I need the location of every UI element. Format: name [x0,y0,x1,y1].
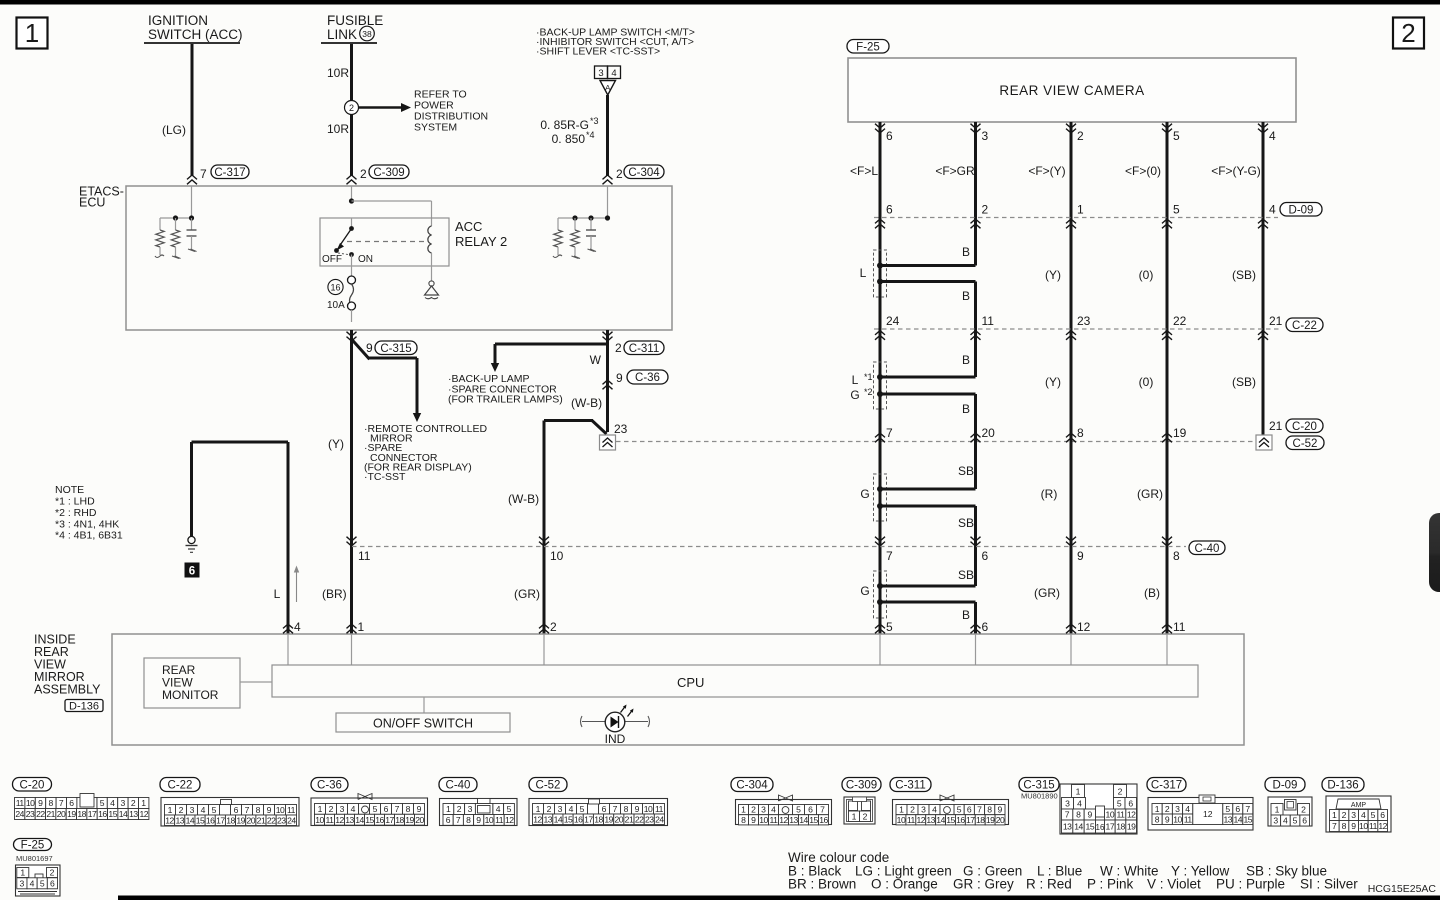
svg-text:(GR): (GR) [1034,586,1060,600]
svg-text:5: 5 [1117,798,1122,808]
svg-text:19: 19 [1127,822,1136,832]
svg-text:13: 13 [789,815,798,825]
svg-text:(R): (R) [1041,487,1058,501]
svg-text:2: 2 [179,805,184,815]
svg-text:6: 6 [602,804,607,814]
svg-text:16: 16 [819,815,828,825]
svg-text:3: 3 [761,805,766,815]
svg-text:6: 6 [967,805,972,815]
svg-text:4: 4 [201,805,206,815]
svg-text:D-09: D-09 [1289,204,1314,216]
svg-text:4: 4 [351,804,356,814]
svg-text:1: 1 [899,805,904,815]
svg-text:11: 11 [907,815,916,825]
svg-text:(0): (0) [1139,268,1154,282]
svg-text:9: 9 [267,805,272,815]
svg-text:<F>(0): <F>(0) [1125,164,1161,178]
svg-text:L: L [852,373,859,387]
svg-text:12: 12 [139,809,148,819]
svg-text:FUSIBLE: FUSIBLE [327,13,383,28]
svg-text:2: 2 [329,804,334,814]
svg-text:15: 15 [365,815,374,825]
svg-text:2: 2 [1165,804,1170,814]
svg-text:10: 10 [485,815,494,825]
svg-text:C-311: C-311 [629,343,659,355]
svg-text:15: 15 [1244,814,1253,824]
svg-text:<F>L: <F>L [850,164,878,178]
svg-text:8: 8 [1342,821,1347,831]
svg-text:3: 3 [558,804,563,814]
svg-text:15: 15 [196,815,205,825]
svg-text:LINK: LINK [327,27,357,42]
svg-text:14: 14 [186,815,195,825]
svg-text:24: 24 [655,814,664,824]
svg-text:21: 21 [1269,314,1283,328]
svg-text:7: 7 [59,798,64,808]
svg-text:C-315: C-315 [380,343,411,355]
svg-text:23: 23 [1077,314,1091,328]
svg-text:20: 20 [996,815,1005,825]
svg-text:V : Violet: V : Violet [1147,877,1201,892]
svg-text:SYSTEM: SYSTEM [414,122,457,134]
svg-text:7: 7 [1332,821,1337,831]
svg-text:2: 2 [982,203,989,217]
svg-text:19: 19 [986,815,995,825]
svg-text:10: 10 [276,805,285,815]
svg-text:·SHIFT LEVER <TC-SST>: ·SHIFT LEVER <TC-SST> [536,45,660,57]
svg-text:10: 10 [759,815,768,825]
svg-text:ON/OFF SWITCH: ON/OFF SWITCH [373,717,473,731]
svg-text:12: 12 [779,815,788,825]
svg-text:B: B [962,353,970,367]
svg-text:5: 5 [100,798,105,808]
svg-text:7: 7 [200,167,207,181]
svg-text:G: G [860,584,869,598]
svg-text:B: B [962,608,970,622]
svg-text:5: 5 [507,804,512,814]
svg-text:<F>(Y): <F>(Y) [1028,164,1065,178]
svg-text:C-40: C-40 [1195,543,1220,555]
svg-text:21: 21 [1269,419,1283,433]
svg-text:C-311: C-311 [895,780,925,792]
svg-text:14: 14 [119,809,128,819]
svg-text:IGNITION: IGNITION [148,13,208,28]
svg-text:13: 13 [1224,814,1233,824]
svg-text:SB: SB [958,464,974,478]
svg-text:2: 2 [863,811,868,821]
svg-text:5: 5 [212,805,217,815]
svg-text:*1: *1 [864,372,873,382]
svg-text:19: 19 [1173,426,1187,440]
svg-text:MU801697: MU801697 [16,854,53,863]
svg-text:C-36: C-36 [635,372,660,384]
svg-text:22: 22 [1173,314,1187,328]
svg-text:P : Pink: P : Pink [1087,877,1134,892]
svg-text:3: 3 [1273,816,1278,826]
svg-text:6: 6 [1235,804,1240,814]
svg-text:5: 5 [1225,804,1230,814]
svg-text:REAR VIEW CAMERA: REAR VIEW CAMERA [999,83,1144,98]
svg-text:(W-B): (W-B) [571,396,602,410]
svg-text:(LG): (LG) [162,123,186,137]
svg-text:2: 2 [349,103,354,113]
svg-text:15: 15 [564,814,573,824]
svg-text:19: 19 [405,815,414,825]
svg-text:(BR): (BR) [322,587,347,601]
svg-text:C-317: C-317 [214,167,245,179]
svg-text:3: 3 [921,805,926,815]
svg-text:1: 1 [141,798,146,808]
svg-text:C-304: C-304 [628,167,660,179]
svg-text:(Y): (Y) [1045,375,1061,389]
svg-text:6: 6 [446,815,451,825]
svg-text:13: 13 [543,814,552,824]
svg-text:14: 14 [1234,814,1243,824]
svg-text:17: 17 [216,815,225,825]
svg-text:2: 2 [457,804,462,814]
svg-text:2: 2 [751,805,756,815]
svg-text:13: 13 [1063,822,1072,832]
svg-text:3: 3 [468,804,473,814]
svg-text:5: 5 [1173,203,1180,217]
svg-text:6: 6 [384,804,389,814]
svg-text:11: 11 [1184,814,1193,824]
svg-text:4: 4 [932,805,937,815]
svg-text:11: 11 [1173,620,1186,634]
svg-text:NOTE: NOTE [55,484,84,496]
svg-text:6: 6 [982,620,989,634]
svg-text:ECU: ECU [79,196,105,210]
svg-text:12: 12 [165,815,174,825]
svg-text:4: 4 [611,68,616,79]
svg-text:22: 22 [267,815,276,825]
svg-text:F-25: F-25 [856,41,880,53]
svg-text:18: 18 [226,815,235,825]
svg-text:C-317: C-317 [1151,780,1182,792]
svg-text:2: 2 [360,167,367,181]
svg-text:15: 15 [1086,822,1095,832]
svg-text:16: 16 [956,815,965,825]
svg-text:2: 2 [1342,810,1347,820]
svg-text:5: 5 [1293,816,1298,826]
svg-text:20: 20 [982,426,996,440]
svg-text:11: 11 [982,314,995,328]
svg-text:2: 2 [550,620,557,634]
svg-text:14: 14 [936,815,945,825]
svg-text:R : Red: R : Red [1026,877,1072,892]
svg-text:1: 1 [25,18,39,48]
svg-text:10: 10 [644,804,653,814]
svg-text:8: 8 [1076,810,1081,820]
svg-text:1: 1 [1155,804,1160,814]
svg-text:11: 11 [1117,810,1126,820]
svg-text:7: 7 [395,804,400,814]
svg-text:*4: *4 [586,130,595,140]
svg-text:17: 17 [88,809,97,819]
svg-text:10: 10 [315,815,324,825]
svg-text:12: 12 [1127,810,1136,820]
svg-text:7: 7 [1245,804,1250,814]
svg-text:11: 11 [495,815,504,825]
svg-text:1: 1 [741,805,746,815]
svg-text:(SB): (SB) [1232,375,1256,389]
svg-text:C-315: C-315 [1023,780,1054,792]
svg-text:4: 4 [569,804,574,814]
svg-text:10: 10 [550,549,564,563]
svg-text:1: 1 [1275,805,1280,815]
svg-text:3: 3 [598,68,603,79]
svg-text:C-22: C-22 [1292,320,1317,332]
svg-text:C-22: C-22 [168,780,193,792]
svg-text:24: 24 [287,815,296,825]
svg-text:C-309: C-309 [373,167,404,179]
svg-text:*2 : RHD: *2 : RHD [55,507,97,519]
svg-text:13: 13 [345,815,354,825]
svg-text:CPU: CPU [677,675,704,690]
svg-text:7: 7 [245,805,250,815]
svg-text:7: 7 [977,805,982,815]
svg-text:18: 18 [976,815,985,825]
svg-text:14: 14 [799,815,808,825]
svg-text:1: 1 [446,804,451,814]
svg-text:4: 4 [771,805,776,815]
svg-text:10: 10 [1106,810,1115,820]
svg-text:1: 1 [1076,787,1081,797]
svg-text:6: 6 [1380,810,1385,820]
svg-text:7: 7 [886,426,893,440]
svg-text:W: W [590,353,602,367]
svg-text:17: 17 [1106,822,1115,832]
svg-text:3: 3 [19,878,24,888]
svg-text:6: 6 [189,566,195,578]
svg-text:8: 8 [987,805,992,815]
svg-text:HCG15E25AC: HCG15E25AC [1368,883,1437,895]
svg-text:15: 15 [108,809,117,819]
svg-text:23: 23 [277,815,286,825]
svg-text:RELAY 2: RELAY 2 [455,234,507,249]
svg-text:20: 20 [247,815,256,825]
svg-text:GR : Grey: GR : Grey [953,877,1014,892]
svg-text:A: A [605,83,610,92]
svg-text:1: 1 [20,868,25,878]
svg-text:23: 23 [614,422,628,436]
svg-text:6: 6 [69,798,74,808]
svg-text:3: 3 [190,805,195,815]
svg-text:MU801890: MU801890 [1021,792,1058,801]
svg-text:12: 12 [916,815,925,825]
svg-text:8: 8 [406,804,411,814]
svg-text:2: 2 [1301,805,1306,815]
svg-text:4: 4 [1077,798,1082,808]
svg-text:12: 12 [1077,620,1091,634]
svg-text:15: 15 [809,815,818,825]
svg-text:6: 6 [982,549,989,563]
svg-text:10: 10 [1173,814,1182,824]
svg-text:20: 20 [415,815,424,825]
svg-text:16: 16 [574,814,583,824]
svg-text:3: 3 [340,804,345,814]
svg-text:3: 3 [1065,798,1070,808]
svg-text:D-136: D-136 [69,700,99,712]
svg-text:1: 1 [168,805,173,815]
svg-text:SWITCH (ACC): SWITCH (ACC) [148,27,243,42]
svg-text:13: 13 [175,815,184,825]
svg-text:F-25: F-25 [21,840,45,852]
svg-text:6: 6 [886,129,893,143]
svg-text:2: 2 [1401,18,1415,48]
svg-text:17: 17 [584,814,593,824]
svg-text:4: 4 [110,798,115,808]
svg-text:4: 4 [1361,810,1366,820]
svg-text:7: 7 [820,805,825,815]
svg-text:7: 7 [456,815,461,825]
svg-text:3: 3 [982,129,989,143]
svg-text:13: 13 [129,809,138,819]
svg-text:L: L [860,266,867,280]
svg-text:9: 9 [366,341,373,355]
svg-text:11: 11 [358,549,371,563]
svg-text:18: 18 [594,814,603,824]
svg-text:(Y): (Y) [328,437,344,451]
svg-text:5: 5 [957,805,962,815]
svg-text:*1 : LHD: *1 : LHD [55,496,95,508]
svg-text:(SB): (SB) [1232,268,1256,282]
svg-text:9: 9 [1351,821,1356,831]
svg-text:16: 16 [206,815,215,825]
svg-text:7: 7 [886,549,893,563]
svg-text:8: 8 [1155,814,1160,824]
svg-text:6: 6 [886,203,893,217]
svg-text:6: 6 [1302,816,1307,826]
svg-text:4: 4 [496,804,501,814]
svg-text:C-20: C-20 [20,779,45,791]
svg-text:ACC: ACC [455,219,482,234]
svg-text:2: 2 [50,868,55,878]
svg-text:8: 8 [741,815,746,825]
svg-text:11: 11 [16,798,25,808]
svg-text:(0): (0) [1139,375,1154,389]
svg-text:5: 5 [580,804,585,814]
svg-text:9: 9 [635,804,640,814]
svg-text:14: 14 [1074,822,1083,832]
svg-text:AMP: AMP [1351,802,1367,809]
svg-text:13: 13 [926,815,935,825]
svg-text:12: 12 [505,815,514,825]
svg-text:12: 12 [335,815,344,825]
svg-text:20: 20 [615,814,624,824]
svg-text:(GR): (GR) [514,587,540,601]
svg-text:B: B [962,245,970,259]
svg-text:8: 8 [1173,549,1180,563]
svg-text:B: B [962,402,970,416]
svg-text:5: 5 [373,804,378,814]
svg-text:11: 11 [655,804,664,814]
svg-text:ON: ON [358,254,373,265]
svg-text:18: 18 [1116,822,1125,832]
svg-text:C-309: C-309 [846,780,877,792]
svg-text:9: 9 [417,804,422,814]
svg-text:11: 11 [287,805,296,815]
svg-text:C-52: C-52 [536,780,561,792]
svg-text:1: 1 [852,811,857,821]
svg-text:9: 9 [1077,549,1084,563]
svg-text:24: 24 [886,314,900,328]
svg-text:2: 2 [1118,787,1123,797]
svg-text:9: 9 [476,815,481,825]
svg-text:12: 12 [1378,821,1387,831]
svg-text:6: 6 [234,805,239,815]
svg-text:16: 16 [375,815,384,825]
svg-text:3: 3 [1175,804,1180,814]
svg-text:·TC-SST: ·TC-SST [364,471,406,483]
svg-text:8: 8 [624,804,629,814]
svg-text:11: 11 [1369,821,1378,831]
svg-text:9: 9 [38,798,43,808]
svg-text:2: 2 [131,798,136,808]
svg-text:4: 4 [294,620,301,634]
svg-text:9: 9 [616,371,623,385]
svg-text:C-304: C-304 [736,780,768,792]
svg-text:38: 38 [362,29,372,39]
svg-text:16: 16 [1096,823,1105,832]
svg-text:ASSEMBLY: ASSEMBLY [34,683,101,697]
svg-text:3: 3 [1351,810,1356,820]
svg-text:2: 2 [1077,129,1084,143]
svg-text:5: 5 [796,805,801,815]
svg-text:SI : Silver: SI : Silver [1300,877,1358,892]
svg-text:C-36: C-36 [317,780,342,792]
svg-text:7: 7 [1065,810,1070,820]
svg-text:18: 18 [395,815,404,825]
svg-text:0. 850: 0. 850 [552,132,586,146]
svg-text:9: 9 [998,805,1003,815]
svg-text:<F>GR: <F>GR [935,164,975,178]
svg-text:*3: *3 [590,116,599,126]
svg-text:<F>(Y-G): <F>(Y-G) [1211,164,1261,178]
svg-text:8: 8 [466,815,471,825]
svg-text:6: 6 [808,805,813,815]
svg-text:5: 5 [1173,129,1180,143]
svg-text:1: 1 [1077,203,1084,217]
svg-text:B: B [962,289,970,303]
svg-text:21: 21 [46,809,55,819]
svg-text:18: 18 [77,809,86,819]
svg-text:14: 14 [355,815,364,825]
svg-text:MONITOR: MONITOR [162,688,219,702]
svg-text:(FOR TRAILER LAMPS): (FOR TRAILER LAMPS) [448,394,563,406]
svg-text:16: 16 [330,283,340,293]
svg-text:10: 10 [897,815,906,825]
svg-text:10R: 10R [327,66,349,80]
svg-text:*2: *2 [864,387,873,397]
svg-text:8: 8 [256,805,261,815]
svg-text:10: 10 [26,798,35,808]
svg-text:21: 21 [257,815,266,825]
svg-text:12: 12 [1203,809,1213,819]
svg-text:(GR): (GR) [1137,487,1163,501]
svg-text:C-40: C-40 [446,780,471,792]
svg-text:22: 22 [36,809,45,819]
svg-text:17: 17 [385,815,394,825]
svg-text:9: 9 [751,815,756,825]
svg-text:1: 1 [318,804,323,814]
svg-text:9: 9 [1165,814,1170,824]
svg-text:4: 4 [1269,129,1276,143]
svg-text:SB: SB [958,568,974,582]
svg-text:D-09: D-09 [1273,780,1298,792]
svg-text:7: 7 [613,804,618,814]
svg-text:5: 5 [886,620,893,634]
